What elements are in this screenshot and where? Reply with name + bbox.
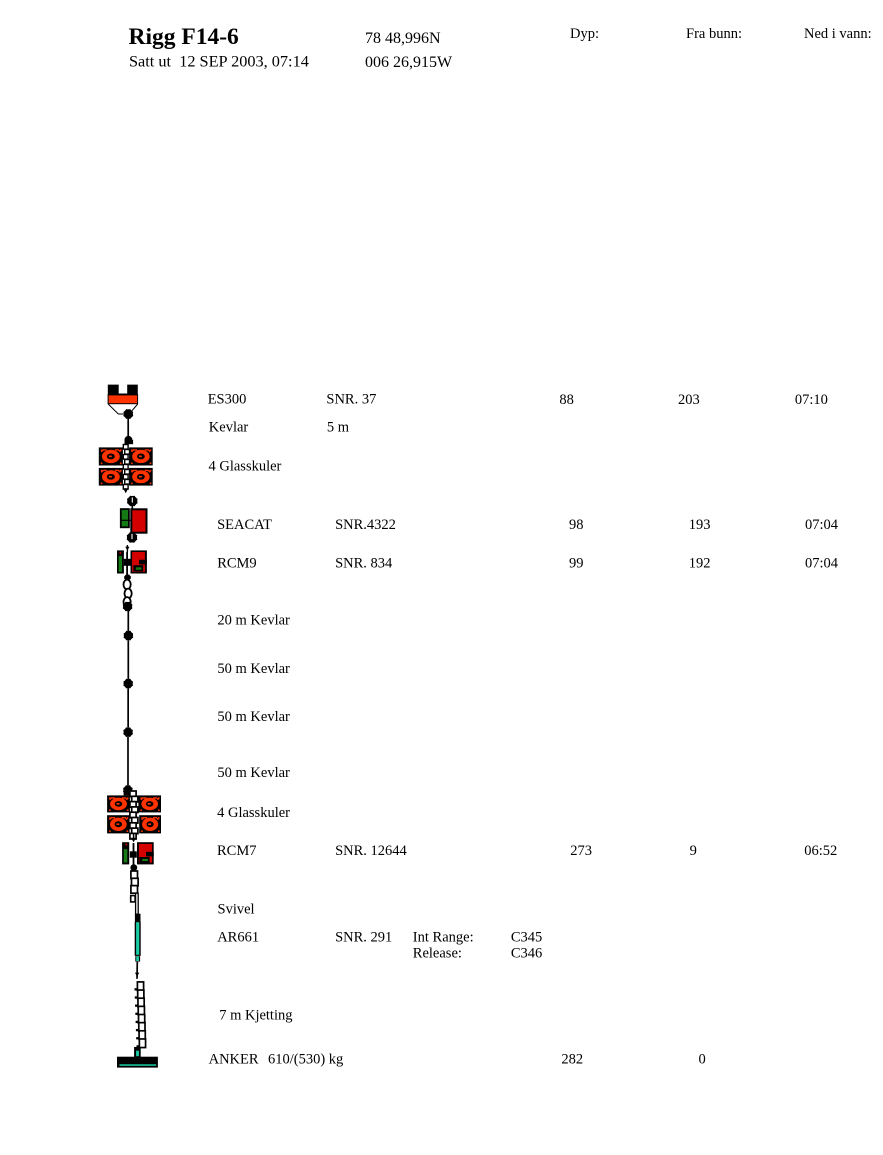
svg-text:Dyp:: Dyp: bbox=[570, 26, 599, 42]
svg-text:0: 0 bbox=[699, 1052, 706, 1068]
svg-text:78 48,996N: 78 48,996N bbox=[365, 30, 441, 47]
svg-text:50 m Kevlar: 50 m Kevlar bbox=[217, 709, 290, 725]
svg-text:SNR. 12644: SNR. 12644 bbox=[335, 843, 407, 859]
svg-text:07:04: 07:04 bbox=[805, 555, 839, 571]
svg-text:7 m Kjetting: 7 m Kjetting bbox=[219, 1008, 292, 1024]
svg-text:SEACAT: SEACAT bbox=[217, 517, 272, 533]
svg-text:ES300: ES300 bbox=[208, 391, 247, 407]
svg-text:07:04: 07:04 bbox=[805, 517, 839, 533]
svg-text:610/(530) kg: 610/(530) kg bbox=[268, 1052, 343, 1068]
svg-text:20 m Kevlar: 20 m Kevlar bbox=[217, 613, 290, 629]
svg-text:Int Range:: Int Range: bbox=[413, 930, 474, 946]
svg-text:193: 193 bbox=[689, 517, 711, 533]
svg-text:Kevlar: Kevlar bbox=[209, 420, 249, 436]
svg-text:06:52: 06:52 bbox=[804, 843, 837, 859]
svg-text:88: 88 bbox=[559, 392, 574, 408]
svg-text:4 Glasskuler: 4 Glasskuler bbox=[217, 805, 290, 821]
svg-text:RCM9: RCM9 bbox=[217, 555, 257, 571]
svg-text:5 m: 5 m bbox=[327, 420, 350, 436]
svg-text:Svivel: Svivel bbox=[218, 901, 255, 917]
svg-text:SNR. 37: SNR. 37 bbox=[326, 391, 376, 407]
svg-text:SNR. 291: SNR. 291 bbox=[335, 930, 392, 946]
svg-text:50 m Kevlar: 50 m Kevlar bbox=[217, 765, 290, 781]
svg-text:50 m Kevlar: 50 m Kevlar bbox=[217, 661, 290, 677]
svg-text:07:10: 07:10 bbox=[795, 392, 828, 408]
svg-text:203: 203 bbox=[678, 392, 700, 408]
svg-text:C345: C345 bbox=[511, 930, 542, 946]
svg-text:Ned i vann:: Ned i vann: bbox=[804, 26, 872, 42]
svg-text:192: 192 bbox=[689, 555, 711, 571]
svg-text:Release:: Release: bbox=[413, 945, 462, 961]
svg-text:C346: C346 bbox=[511, 945, 542, 961]
svg-text:282: 282 bbox=[561, 1052, 583, 1068]
svg-text:RCM7: RCM7 bbox=[217, 843, 257, 859]
svg-text:273: 273 bbox=[570, 843, 592, 859]
svg-text:006 26,915W: 006 26,915W bbox=[365, 54, 453, 71]
svg-text:ANKER: ANKER bbox=[209, 1052, 259, 1068]
svg-text:9: 9 bbox=[690, 843, 697, 859]
svg-text:SNR. 834: SNR. 834 bbox=[335, 555, 393, 571]
svg-text:SNR.4322: SNR.4322 bbox=[335, 517, 396, 533]
svg-text:99: 99 bbox=[569, 555, 584, 571]
svg-text:98: 98 bbox=[569, 517, 584, 533]
svg-text:Rigg F14-6: Rigg F14-6 bbox=[129, 24, 240, 50]
svg-text:Satt ut 12 SEP 2003, 07:14: Satt ut 12 SEP 2003, 07:14 bbox=[129, 52, 309, 71]
svg-text:Fra bunn:: Fra bunn: bbox=[686, 26, 742, 42]
svg-text:AR661: AR661 bbox=[217, 930, 259, 946]
svg-text:4 Glasskuler: 4 Glasskuler bbox=[209, 459, 282, 475]
